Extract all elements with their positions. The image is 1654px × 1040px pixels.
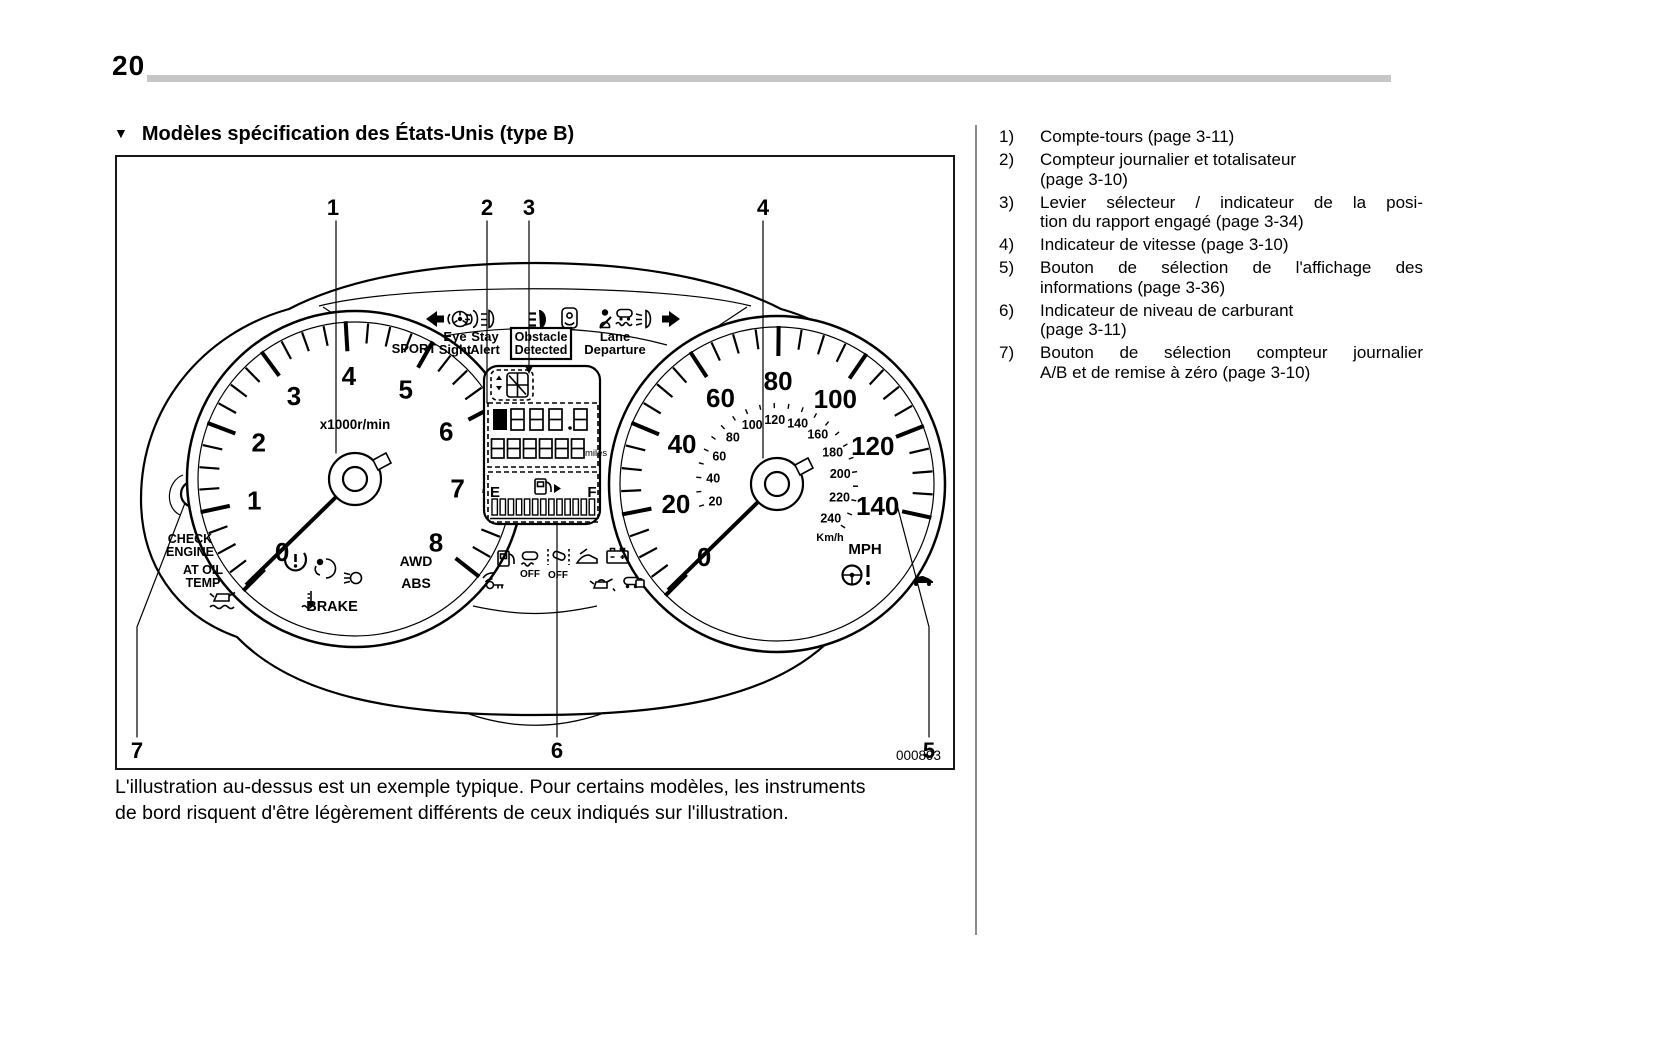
tick <box>788 404 789 409</box>
mph-number: 20 <box>661 489 690 519</box>
legend-line: A/B et de remise à zéro (page 3-10) <box>1040 363 1423 383</box>
figure-code: 000893 <box>896 748 941 763</box>
tach-number: 6 <box>439 416 453 446</box>
legend-line: informations (page 3-36) <box>1040 278 1423 298</box>
kmh-number: 220 <box>829 490 850 504</box>
legend-item-text: Bouton de sélection de l'affichage desin… <box>1040 258 1423 297</box>
legend-item: 3)Levier sélecteur / indicateur de la po… <box>999 193 1423 232</box>
legend-line: Levier sélecteur / indicateur de la posi… <box>1040 193 1423 213</box>
section-heading-text: Modèles spécification des États-Unis (ty… <box>142 123 574 145</box>
eyesight-indicator-icon <box>562 308 577 328</box>
legend-line: Compteur journalier et totalisateur <box>1040 150 1423 170</box>
awd-label: AWD <box>400 553 433 569</box>
legend-line: Indicateur de niveau de carburant <box>1040 301 1423 321</box>
kmh-number: 140 <box>787 416 808 430</box>
svg-text:Alert: Alert <box>470 342 500 357</box>
kmh-number: 240 <box>820 512 841 526</box>
svg-text:ENGINE: ENGINE <box>166 545 214 559</box>
abs-label: ABS <box>401 575 431 591</box>
fuel-bar <box>581 499 586 515</box>
legend-item-text: Bouton de sélection compteur journalierA… <box>1040 343 1423 382</box>
speedometer-gauge: 020406080100120140 204060801001201401601… <box>609 316 945 652</box>
legend-item: 6)Indicateur de niveau de carburant(page… <box>999 301 1423 340</box>
legend-line: (page 3-11) <box>1040 320 1423 340</box>
legend-item-number: 1) <box>999 127 1040 147</box>
kmh-number: 120 <box>764 413 785 427</box>
hood-open-icon <box>577 549 597 563</box>
column-divider <box>975 125 977 935</box>
legend-item: 1)Compte-tours (page 3-11) <box>999 127 1423 147</box>
tick <box>199 488 219 489</box>
check-engine-label: CHECK <box>168 532 212 546</box>
instrument-cluster-figure: 012345678 x1000r/min AWD ABS BRAKE CH <box>115 155 955 770</box>
figure-caption: L'illustration au-dessus est un exemple … <box>115 775 985 826</box>
tick <box>913 493 933 494</box>
kmh-number: 200 <box>830 467 851 481</box>
tachometer-unit-label: x1000r/min <box>320 417 391 432</box>
legend-item-number: 3) <box>999 193 1040 232</box>
oil-temp-icon <box>210 593 235 609</box>
mph-number: 60 <box>706 383 735 413</box>
security-indicator-icon <box>624 578 644 589</box>
caption-line: de bord risquent d'être légèrement diffé… <box>115 801 985 827</box>
legend-item-number: 6) <box>999 301 1040 340</box>
at-oil-temp-label: AT OIL <box>183 563 223 577</box>
legend-line: Compte-tours (page 3-11) <box>1040 127 1423 147</box>
legend-line: tion du rapport engagé (page 3-34) <box>1040 212 1423 232</box>
oil-pressure-warning-icon <box>590 579 615 591</box>
legend-item-number: 5) <box>999 258 1040 297</box>
tick <box>346 321 348 351</box>
legend-item-text: Compte-tours (page 3-11) <box>1040 127 1423 147</box>
sport-label: SPORT <box>392 341 437 356</box>
legend-line: Bouton de sélection compteur journalier <box>1040 343 1423 363</box>
fuel-bar <box>508 499 513 515</box>
fuel-bar <box>533 499 538 515</box>
tach-number: 1 <box>247 486 261 516</box>
fuel-bar <box>573 499 578 515</box>
section-marker-icon: ▼ <box>114 125 128 141</box>
mph-number: 140 <box>856 491 899 521</box>
header-rule <box>147 75 1391 82</box>
legend-item-number: 2) <box>999 150 1040 189</box>
legend-line: Indicateur de vitesse (page 3-10) <box>1040 235 1423 255</box>
mph-number: 80 <box>764 366 793 396</box>
callout-4: 4 <box>757 195 770 220</box>
legend-item: 5)Bouton de sélection de l'affichage des… <box>999 258 1423 297</box>
fuel-bar <box>500 499 505 515</box>
lane-departure-off-icon: OFF <box>548 549 569 581</box>
headlight-leveler-icon <box>636 311 651 328</box>
svg-text:Departure: Departure <box>584 342 645 357</box>
legend-item-number: 4) <box>999 235 1040 255</box>
legend-item: 7)Bouton de sélection compteur journalie… <box>999 343 1423 382</box>
caption-line: L'illustration au-dessus est un exemple … <box>115 775 985 801</box>
legend-item-text: Compteur journalier et totalisateur(page… <box>1040 150 1423 189</box>
svg-text:Detected: Detected <box>515 343 568 357</box>
turn-signal-left-icon <box>426 311 444 327</box>
cluster-diagram: 012345678 x1000r/min AWD ABS BRAKE CH <box>117 157 953 768</box>
tach-number: 2 <box>251 427 265 457</box>
kmh-number: 40 <box>706 472 720 486</box>
callout-7: 7 <box>131 738 143 763</box>
fuel-bar <box>541 499 546 515</box>
fuel-bar <box>516 499 521 515</box>
legend-item-text: Levier sélecteur / indicateur de la posi… <box>1040 193 1423 232</box>
kmh-label: Km/h <box>816 532 844 544</box>
kmh-number: 80 <box>726 431 740 445</box>
tach-number: 3 <box>287 381 301 411</box>
obstacle-detected-label: Obstacle <box>515 330 568 344</box>
turn-signal-right-icon <box>662 311 680 327</box>
kmh-number: 180 <box>822 445 843 459</box>
vdc-indicator-icon <box>616 310 632 326</box>
callout-1: 1 <box>327 195 339 220</box>
legend-line: (page 3-10) <box>1040 170 1423 190</box>
bottom-warning-icons: OFF OFF <box>483 549 644 592</box>
miles-label: miles <box>585 448 607 459</box>
lane-off-label: OFF <box>548 570 568 581</box>
callout-2: 2 <box>481 195 493 220</box>
svg-text:TEMP: TEMP <box>186 576 221 590</box>
legend-item: 2)Compteur journalier et totalisateur(pa… <box>999 150 1423 189</box>
tach-number: 5 <box>398 374 412 404</box>
fuel-bar <box>492 499 497 515</box>
tach-number: 7 <box>450 474 464 504</box>
tick <box>852 472 857 473</box>
high-beam-indicator-icon <box>529 310 546 329</box>
tachometer-gauge: 012345678 x1000r/min <box>187 311 523 647</box>
section-heading: ▼Modèles spécification des États-Unis (t… <box>114 123 574 146</box>
legend-item-text: Indicateur de vitesse (page 3-10) <box>1040 235 1423 255</box>
kmh-number: 60 <box>712 449 726 463</box>
fuel-bar <box>557 499 562 515</box>
callout-3: 3 <box>523 195 535 220</box>
page-number: 20 <box>112 50 145 82</box>
mph-number: 100 <box>814 384 857 414</box>
brake-label: BRAKE <box>306 599 358 615</box>
trip-meter-digits <box>511 409 587 430</box>
legend-line: Bouton de sélection de l'affichage des <box>1040 258 1423 278</box>
trip-b-label: B <box>497 421 504 432</box>
svg-text:Sight: Sight <box>439 342 472 357</box>
fuel-bar <box>549 499 554 515</box>
kmh-number: 100 <box>742 418 763 432</box>
seatbelt-warning-icon <box>600 309 611 328</box>
vdc-off-label: OFF <box>520 569 540 580</box>
center-display: A B miles E F <box>484 366 607 524</box>
fuel-bar <box>589 499 594 515</box>
fog-lamp-indicator-icon <box>465 311 478 328</box>
mph-number: 120 <box>851 431 894 461</box>
tach-number: 4 <box>342 361 357 391</box>
fuel-bar <box>565 499 570 515</box>
vdc-off-icon: OFF <box>520 552 540 580</box>
tick <box>621 490 641 491</box>
legend-item-text: Indicateur de niveau de carburant(page 3… <box>1040 301 1423 340</box>
mph-label: MPH <box>848 541 881 558</box>
mph-number: 40 <box>668 429 697 459</box>
tick <box>199 467 219 469</box>
kmh-number: 160 <box>807 428 828 442</box>
kmh-number: 20 <box>709 495 723 509</box>
fuel-bar <box>524 499 529 515</box>
legend-item: 4)Indicateur de vitesse (page 3-10) <box>999 235 1423 255</box>
callout-6: 6 <box>551 738 563 763</box>
legend-item-number: 7) <box>999 343 1040 382</box>
legend-list: 1)Compte-tours (page 3-11)2)Compteur jou… <box>999 127 1423 386</box>
